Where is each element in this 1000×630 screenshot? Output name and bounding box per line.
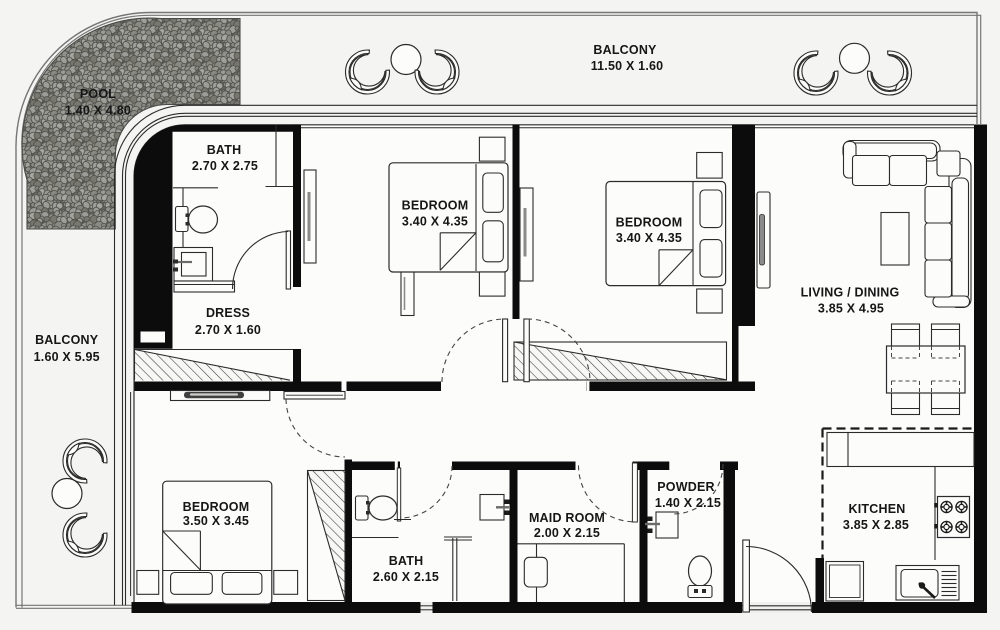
svg-text:LIVING / DINING: LIVING / DINING <box>801 286 900 300</box>
svg-text:MAID ROOM: MAID ROOM <box>529 511 605 525</box>
svg-text:KITCHEN: KITCHEN <box>849 502 906 516</box>
svg-text:1.40 X 4.80: 1.40 X 4.80 <box>65 104 131 118</box>
svg-text:3.85 X 2.85: 3.85 X 2.85 <box>843 518 909 532</box>
svg-text:BEDROOM: BEDROOM <box>183 500 250 514</box>
svg-text:BEDROOM: BEDROOM <box>402 199 469 213</box>
svg-text:3.40 X 4.35: 3.40 X 4.35 <box>616 231 682 245</box>
svg-text:2.60 X 2.15: 2.60 X 2.15 <box>373 570 439 584</box>
svg-text:DRESS: DRESS <box>206 306 250 320</box>
svg-text:BALCONY: BALCONY <box>593 43 657 57</box>
svg-text:3.40 X 4.35: 3.40 X 4.35 <box>402 215 468 229</box>
svg-text:3.85 X 4.95: 3.85 X 4.95 <box>818 302 884 316</box>
svg-text:1.40 X 2.15: 1.40 X 2.15 <box>655 496 721 510</box>
svg-text:3.50 X 3.45: 3.50 X 3.45 <box>183 514 249 528</box>
svg-text:POWDER: POWDER <box>657 480 714 494</box>
svg-text:POOL: POOL <box>80 87 116 101</box>
svg-text:2.70 X 1.60: 2.70 X 1.60 <box>195 323 261 337</box>
svg-text:2.00 X 2.15: 2.00 X 2.15 <box>534 526 600 540</box>
svg-text:BATH: BATH <box>207 143 242 157</box>
svg-text:BALCONY: BALCONY <box>35 333 99 347</box>
svg-text:1.60 X 5.95: 1.60 X 5.95 <box>34 350 100 364</box>
svg-text:BEDROOM: BEDROOM <box>616 216 683 230</box>
svg-text:2.70 X 2.75: 2.70 X 2.75 <box>192 159 258 173</box>
svg-text:BATH: BATH <box>389 554 424 568</box>
svg-text:11.50 X 1.60: 11.50 X 1.60 <box>591 59 664 73</box>
